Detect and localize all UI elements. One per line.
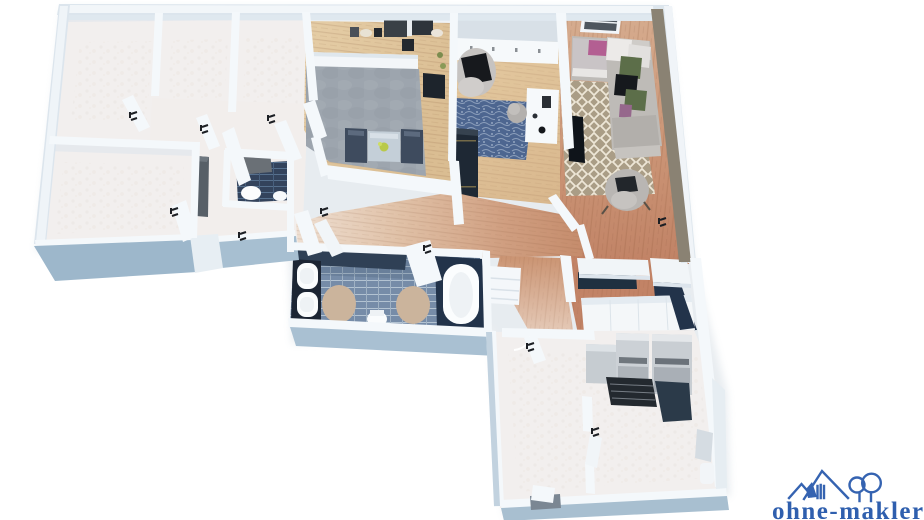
svg-text:ohne-makler: ohne-makler xyxy=(772,498,924,520)
